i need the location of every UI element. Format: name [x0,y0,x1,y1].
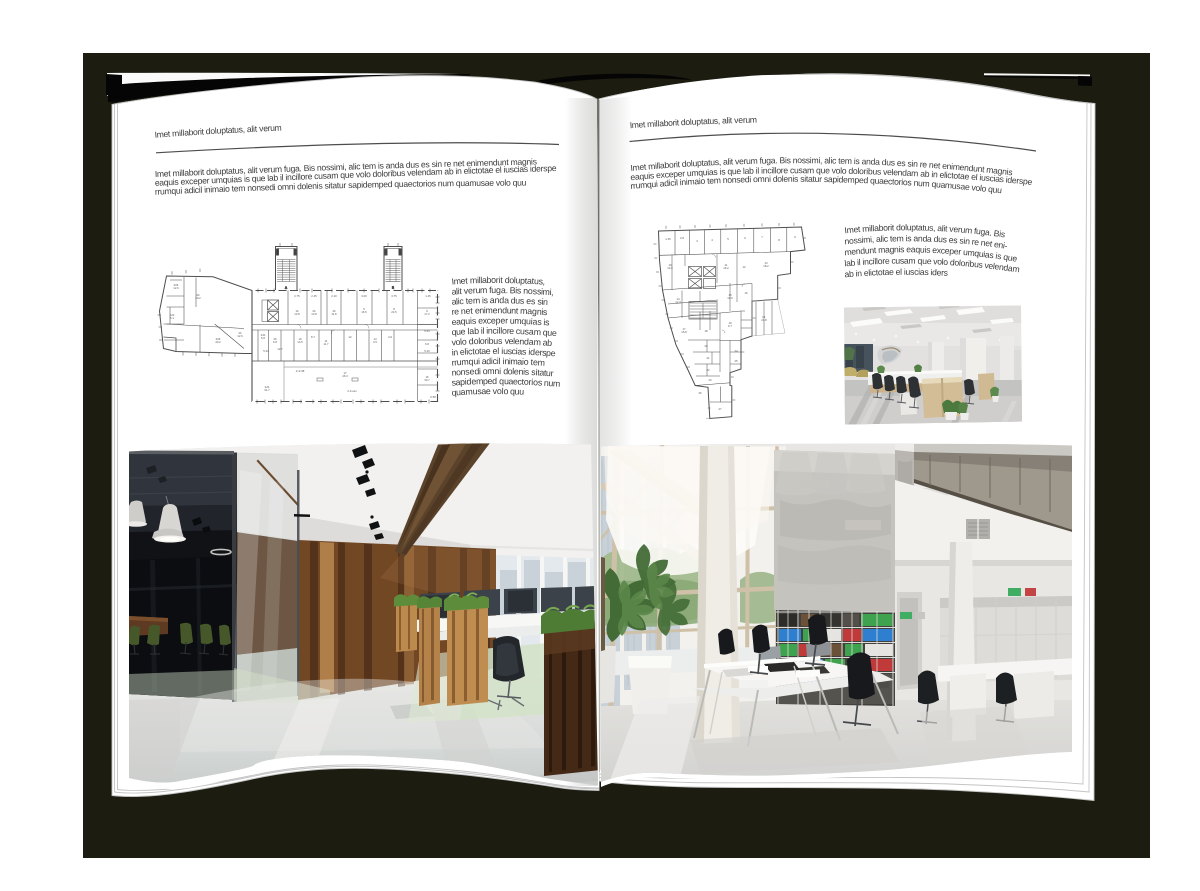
svg-text:22: 22 [706,368,710,372]
svg-text:1.45: 1.45 [425,294,431,298]
svg-text:16.5: 16.5 [361,310,367,314]
svg-text:10.6: 10.6 [727,296,733,300]
svg-text:5.54: 5.54 [424,329,430,333]
svg-text:8.7: 8.7 [311,335,315,339]
svg-text:24.5: 24.5 [391,310,397,314]
svg-text:18: 18 [704,329,708,333]
svg-text:6.8: 6.8 [273,340,277,344]
svg-text:13.8: 13.8 [311,312,317,316]
svg-text:4.9: 4.9 [388,335,392,339]
svg-text:25: 25 [734,359,738,363]
svg-text:rrumqui adicil inimaio tem: rrumqui adicil inimaio tem [451,356,545,368]
svg-text:6.8: 6.8 [425,342,429,346]
svg-text:12: 12 [348,335,352,339]
svg-text:24.8: 24.8 [761,318,767,322]
svg-text:30.7: 30.7 [424,378,430,382]
svg-text:20: 20 [704,344,708,348]
svg-text:2.45: 2.45 [311,294,317,298]
svg-text:12.6: 12.6 [237,334,243,338]
svg-text:quamusae volo quu: quamusae volo quu [451,386,524,398]
svg-text:17.2: 17.2 [424,312,430,316]
svg-text:4.5: 4.5 [373,340,377,344]
svg-text:5.8: 5.8 [261,336,265,340]
svg-text:12.4: 12.4 [675,300,681,304]
svg-text:5.43: 5.43 [263,349,269,353]
svg-text:23: 23 [708,378,712,382]
svg-text:2.75: 2.75 [294,294,300,298]
svg-text:30.2: 30.2 [195,296,201,300]
svg-text:14.6: 14.6 [667,266,673,270]
svg-text:16: 16 [744,291,748,295]
svg-text:14.5: 14.5 [297,340,303,344]
svg-text:31.7: 31.7 [264,388,270,392]
svg-text:21: 21 [706,356,710,360]
svg-text:18.2: 18.2 [763,264,769,268]
svg-text:40.2: 40.2 [215,340,221,344]
svg-text:5.43: 5.43 [424,349,430,353]
svg-text:5.1: 5.1 [170,316,174,320]
svg-text:2-й зал: 2-й зал [347,389,357,393]
svg-text:6.58: 6.58 [430,395,436,399]
svg-text:15.8: 15.8 [681,330,687,334]
svg-text:27: 27 [718,407,722,411]
svg-text:26: 26 [698,391,702,395]
svg-text:46.3: 46.3 [342,374,348,378]
svg-text:Imet millaborit doluptatus,: Imet millaborit doluptatus, [451,275,545,287]
svg-text:11.7: 11.7 [323,342,329,346]
svg-text:1.45: 1.45 [665,237,671,241]
svg-text:1=2.98: 1=2.98 [296,369,305,373]
svg-text:12: 12 [742,265,746,269]
svg-text:11.8: 11.8 [331,312,337,316]
svg-text:12.7: 12.7 [277,347,283,351]
svg-text:24: 24 [734,349,738,353]
svg-text:13.8: 13.8 [294,312,300,316]
svg-text:12.6: 12.6 [173,286,179,290]
svg-text:9.7: 9.7 [728,324,732,328]
svg-text:16.2: 16.2 [723,266,729,270]
svg-text:2.10: 2.10 [331,294,337,298]
svg-text:3.00: 3.00 [361,294,367,298]
svg-text:3.75: 3.75 [391,294,397,298]
svg-text:2.8: 2.8 [680,236,684,240]
